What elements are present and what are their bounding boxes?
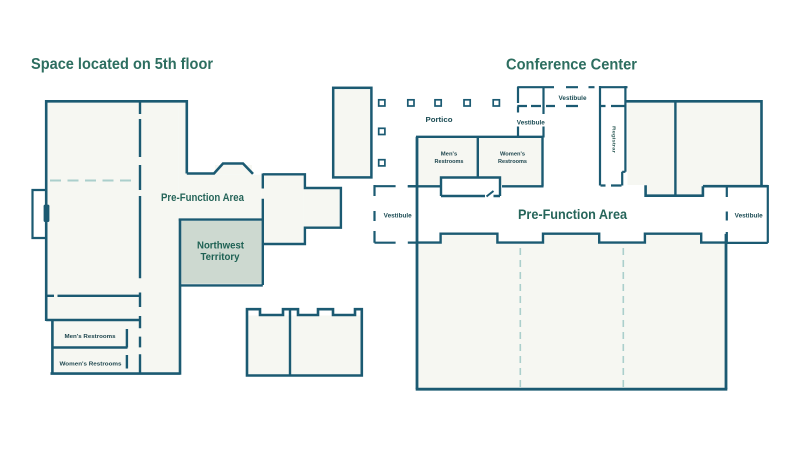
svg-text:Space located on 5th floor: Space located on 5th floor [31,56,213,73]
svg-text:Portico: Portico [426,115,453,124]
svg-text:Pre-Function Area: Pre-Function Area [518,206,627,222]
svg-text:Conference Center: Conference Center [506,57,637,74]
svg-text:Restrooms: Restrooms [435,159,464,165]
svg-text:Territory: Territory [201,252,240,263]
svg-text:Vestibule: Vestibule [559,96,588,102]
svg-text:Women's: Women's [500,152,525,158]
svg-text:Vestibule: Vestibule [517,121,546,127]
svg-text:Pre-Function Area: Pre-Function Area [161,192,245,204]
svg-text:Women's Restrooms: Women's Restrooms [60,362,122,368]
svg-text:Men's Restrooms: Men's Restrooms [65,334,116,340]
svg-text:Northwest: Northwest [197,241,245,252]
svg-text:Men's: Men's [441,152,458,158]
svg-text:Vestibule: Vestibule [384,214,413,220]
svg-text:Restrooms: Restrooms [498,159,527,165]
svg-text:Vestibule: Vestibule [735,214,764,220]
svg-text:Registrar: Registrar [611,126,617,153]
